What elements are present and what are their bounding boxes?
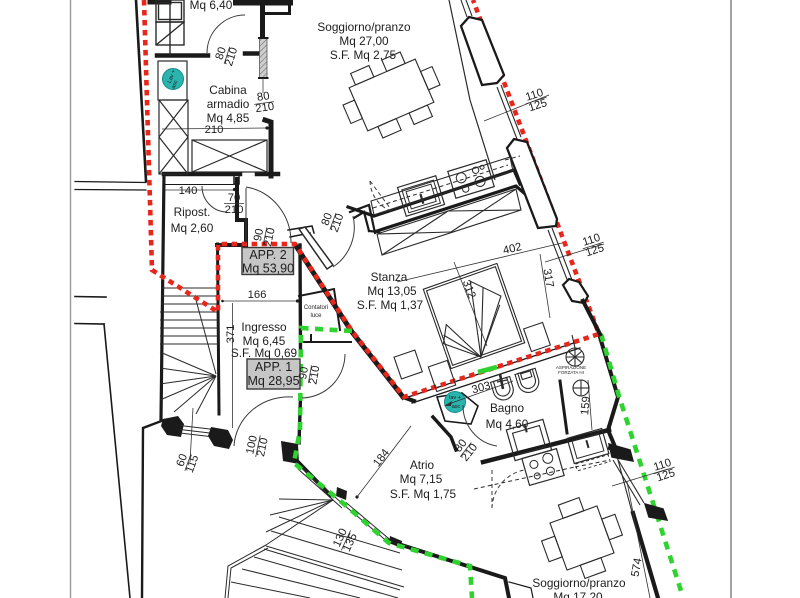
svg-text:371: 371 [225, 325, 237, 344]
svg-text:Mq 2,60: Mq 2,60 [171, 221, 214, 235]
svg-text:Mq 17,20: Mq 17,20 [553, 590, 603, 598]
svg-text:Contatori: Contatori [304, 305, 328, 311]
svg-text:S.F. Mq 2,75: S.F. Mq 2,75 [330, 48, 397, 62]
svg-text:APP. 2: APP. 2 [249, 248, 286, 262]
svg-text:140: 140 [179, 185, 198, 197]
svg-text:Mq 7,15: Mq 7,15 [400, 472, 443, 486]
svg-text:Mq 27,00: Mq 27,00 [339, 34, 389, 48]
svg-text:Ingresso: Ingresso [241, 320, 287, 334]
svg-text:Mq 4,60: Mq 4,60 [486, 417, 529, 431]
svg-text:armadio: armadio [207, 97, 250, 111]
svg-text:S.F. Mq 0,69: S.F. Mq 0,69 [231, 346, 297, 360]
svg-text:Atrio: Atrio [410, 458, 435, 472]
svg-text:APP. 1: APP. 1 [255, 360, 292, 374]
svg-text:Soggiorno/pranzo: Soggiorno/pranzo [532, 576, 626, 590]
svg-text:Ripost.: Ripost. [174, 205, 211, 219]
svg-text:Soggiorno/pranzo: Soggiorno/pranzo [317, 20, 411, 34]
svg-text:asc: asc [452, 404, 461, 410]
svg-text:166: 166 [248, 289, 267, 301]
svg-text:Mq 13,05: Mq 13,05 [367, 284, 417, 298]
svg-text:210: 210 [225, 204, 244, 216]
svg-text:S.F. Mq 1,37: S.F. Mq 1,37 [357, 298, 423, 312]
svg-text:S.F. Mq 1,75: S.F. Mq 1,75 [390, 487, 457, 501]
svg-text:210: 210 [205, 124, 224, 136]
svg-text:184: 184 [371, 447, 392, 469]
svg-text:Mq 28,95: Mq 28,95 [247, 374, 299, 388]
svg-text:Mq 6,40: Mq 6,40 [190, 0, 233, 12]
svg-text:Bagno: Bagno [490, 401, 525, 415]
svg-text:luce: luce [310, 313, 322, 319]
svg-text:Mq 4,85: Mq 4,85 [207, 111, 250, 125]
svg-text:70: 70 [228, 192, 241, 204]
svg-text:Stanza: Stanza [371, 270, 408, 284]
svg-text:Cabina: Cabina [209, 83, 247, 97]
svg-text:Mq 53,90: Mq 53,90 [242, 262, 294, 276]
svg-text:312: 312 [460, 278, 478, 300]
svg-text:FORZATA HI: FORZATA HI [558, 370, 584, 375]
